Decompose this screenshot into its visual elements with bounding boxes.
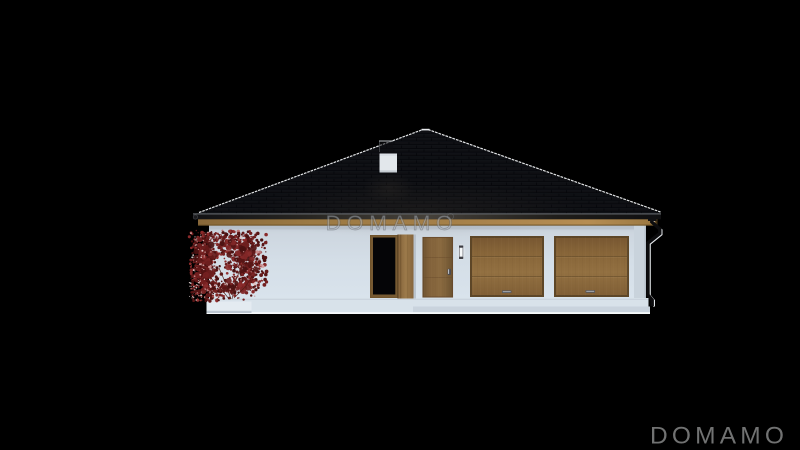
svg-text:DOMAMO: DOMAMO bbox=[650, 423, 788, 450]
svg-text:DOMAMO: DOMAMO bbox=[326, 211, 459, 235]
